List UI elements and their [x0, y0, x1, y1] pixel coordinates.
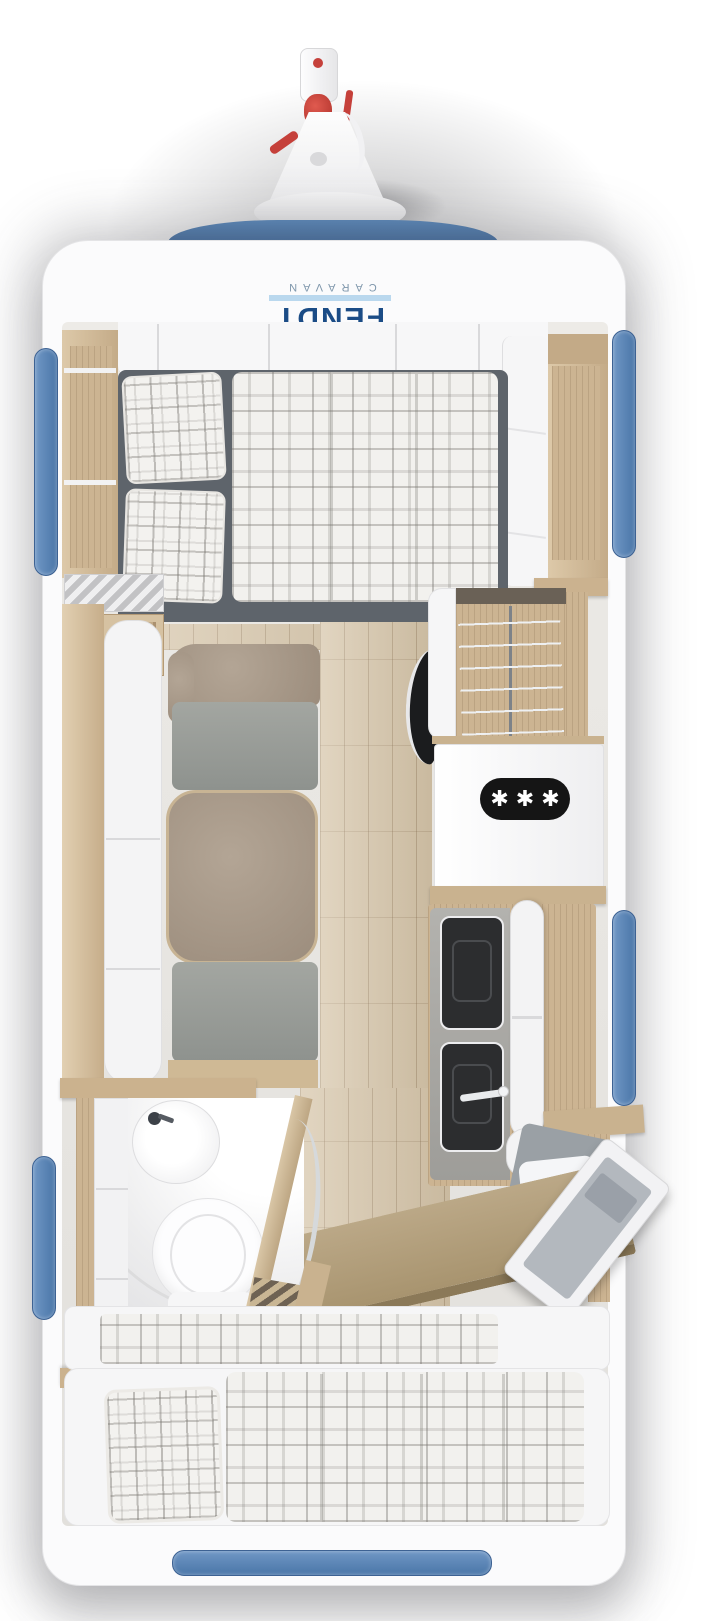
window-right-front — [612, 330, 636, 558]
caravan-floorplan: FENDT CARAVAN — [0, 0, 728, 1621]
wardrobe-right-panel — [566, 592, 588, 740]
sideboard-wood — [62, 604, 104, 1086]
shelf-right-interior — [552, 366, 600, 560]
front-bed-pillow-top — [121, 371, 227, 484]
rear-duvet-crease — [420, 1374, 423, 1520]
window-left-front — [34, 348, 58, 576]
sofa-seat-upper — [172, 702, 318, 790]
vanity-seam — [96, 1188, 128, 1190]
fridge-top-edge — [432, 736, 604, 744]
window-right-mid — [612, 910, 636, 1106]
wardrobe-left-panel — [428, 588, 456, 740]
hitch-red-dot — [313, 58, 323, 68]
kitchen-sink-bowl-outline — [452, 940, 492, 1002]
bed-front-cabinet — [502, 336, 549, 586]
rear-bed-duvet — [226, 1372, 584, 1522]
front-bed-duvet — [232, 372, 498, 602]
hitch-grip-dot — [310, 152, 327, 166]
shelf-left-divider — [64, 480, 116, 485]
brand-logo-secondary: CARAVAN — [250, 280, 410, 293]
rear-bed-upper-duvet — [100, 1314, 498, 1364]
locker-seam — [478, 324, 480, 374]
locker-seam — [395, 324, 397, 374]
sofa-center-cushion — [166, 790, 318, 964]
window-rear — [172, 1550, 492, 1576]
toilet-seat-ring — [170, 1214, 246, 1296]
washbasin — [132, 1100, 220, 1184]
rear-bed-pillow — [104, 1386, 225, 1524]
shelf-left-interior — [70, 346, 112, 568]
duvet-crease — [415, 374, 418, 600]
fridge-freezer-badge: ✱✱✱ — [480, 778, 570, 820]
sideboard-top-white — [104, 620, 162, 1084]
shelf-left-divider — [64, 368, 116, 373]
faucet-knob — [498, 1086, 509, 1097]
sideboard-seam — [106, 968, 160, 970]
sofa-seat-lower — [172, 962, 318, 1062]
sideboard-seam — [106, 838, 160, 840]
kitchen-lid-seam — [512, 1016, 542, 1019]
shelf-right-top — [548, 334, 608, 364]
rear-duvet-crease — [502, 1374, 505, 1520]
kitchen-glass-lids — [510, 900, 544, 1138]
locker-seam — [157, 324, 159, 374]
clothes-hangers — [458, 612, 564, 735]
wardrobe-lintel — [456, 588, 566, 604]
rear-duvet-crease — [320, 1374, 323, 1520]
bathroom-sill-top — [60, 1078, 256, 1098]
vanity-seam — [96, 1278, 128, 1280]
locker-seam — [268, 324, 270, 374]
duvet-crease — [330, 374, 333, 600]
fridge-star-rating: ✱✱✱ — [483, 786, 566, 812]
window-left-rear — [32, 1156, 56, 1320]
